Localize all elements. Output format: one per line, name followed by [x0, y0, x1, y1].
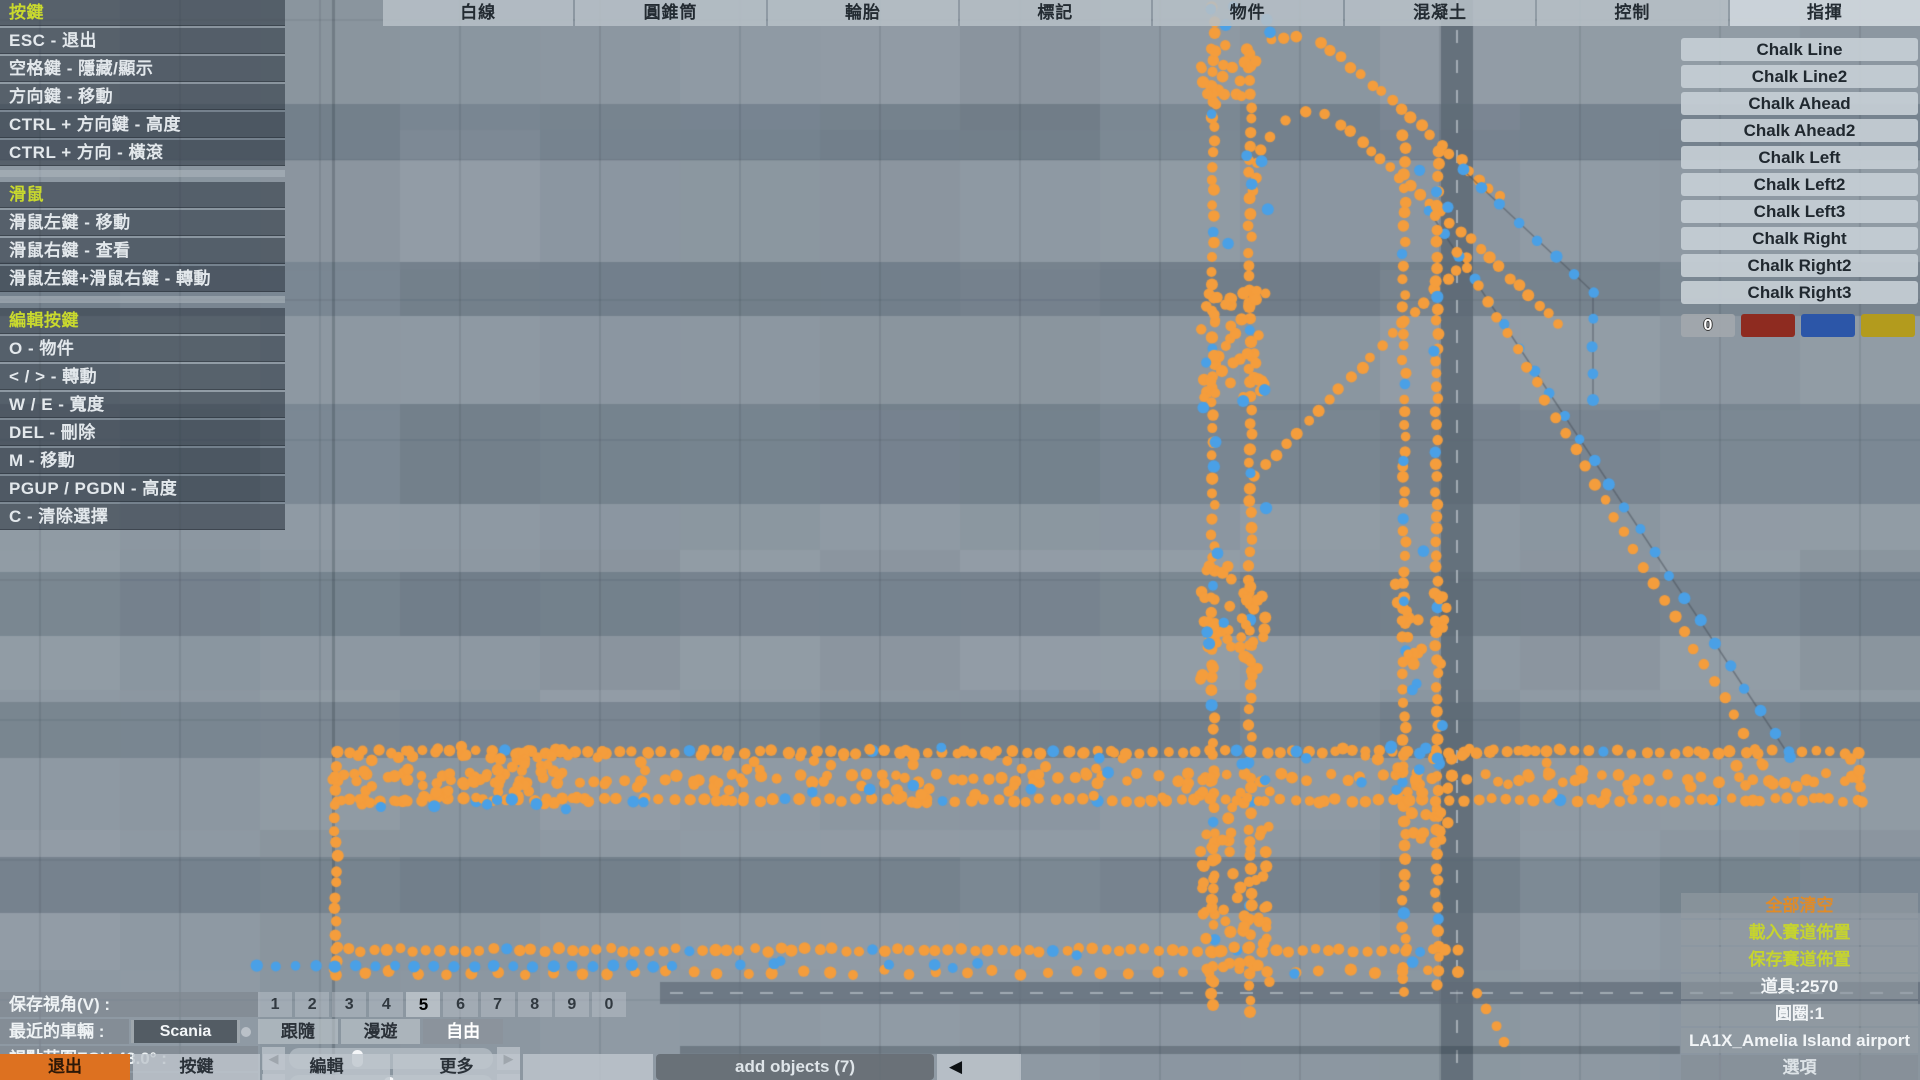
help-row: 滑鼠左鍵+滑鼠右鍵 - 轉動: [0, 266, 285, 292]
bottom-bar-spacer: [523, 1054, 653, 1080]
camera-mode-button[interactable]: 自由: [423, 1019, 503, 1044]
camera-mode-button[interactable]: 跟隨: [258, 1019, 338, 1044]
tab-圓錐筒[interactable]: 圓錐筒: [575, 0, 765, 26]
vehicle-dropdown[interactable]: Scania: [131, 1020, 240, 1043]
help-row: 滑鼠左鍵 - 移動: [0, 210, 285, 236]
tab-物件[interactable]: 物件: [1153, 0, 1343, 26]
tab-標記[interactable]: 標記: [960, 0, 1150, 26]
view-slot-button[interactable]: 1: [258, 992, 292, 1017]
map-name: LA1X_Amelia Island airport: [1681, 1028, 1918, 1053]
view-slot-button[interactable]: 2: [295, 992, 329, 1017]
help-section-title: 按鍵: [0, 0, 285, 26]
clear-all-button[interactable]: 全部清空: [1681, 893, 1918, 918]
more-button[interactable]: 更多: [393, 1054, 520, 1080]
tab-白線[interactable]: 白線: [383, 0, 573, 26]
chalk-item-button[interactable]: Chalk Line: [1681, 38, 1918, 61]
help-row: CTRL + 方向鍵 - 高度: [0, 112, 285, 138]
chalk-item-panel: Chalk LineChalk Line2Chalk AheadChalk Ah…: [1681, 38, 1918, 337]
camera-mode-row: 跟隨漫遊自由: [258, 1019, 503, 1044]
circles-count: 圓圈:1: [1681, 1001, 1918, 1026]
recent-vehicle-label: 最近的車輛 :: [0, 1019, 129, 1044]
camera-mode-button[interactable]: 漫遊: [341, 1019, 421, 1044]
tab-指揮[interactable]: 指揮: [1730, 0, 1920, 26]
map-canvas[interactable]: [0, 0, 1920, 1080]
chalk-item-button[interactable]: Chalk Right: [1681, 227, 1918, 250]
view-slot-button[interactable]: 5: [406, 992, 440, 1017]
object-category-tabs: 白線圓錐筒輪胎標記物件混凝土控制指揮: [383, 0, 1920, 26]
tab-控制[interactable]: 控制: [1537, 0, 1727, 26]
chalk-count-button[interactable]: 0: [1681, 314, 1735, 337]
help-row: W / E - 寬度: [0, 392, 285, 418]
session-panel: 全部清空 載入賽道佈置 保存賽道佈置 道具:2570 圓圈:1 LA1X_Ame…: [1681, 891, 1918, 1080]
bottom-bar: 退出 按鍵 編輯 更多 add objects (7) ◀: [0, 1054, 1920, 1080]
help-row: CTRL + 方向 - 橫滾: [0, 140, 285, 166]
keys-button[interactable]: 按鍵: [133, 1054, 260, 1080]
chalk-item-button[interactable]: Chalk Left3: [1681, 200, 1918, 223]
color-swatch-red[interactable]: [1741, 314, 1795, 337]
view-slot-row: 1234567890: [258, 992, 626, 1017]
chalk-color-row: 0: [1681, 314, 1918, 337]
help-row: 方向鍵 - 移動: [0, 84, 285, 110]
help-section-title: 編輯按鍵: [0, 308, 285, 334]
chalk-item-button[interactable]: Chalk Right2: [1681, 254, 1918, 277]
add-objects-button[interactable]: add objects (7): [656, 1054, 934, 1080]
save-view-row: 保存視角(V) : 1234567890: [0, 992, 1100, 1017]
view-slot-button[interactable]: 0: [592, 992, 626, 1017]
help-section-title: 滑鼠: [0, 182, 285, 208]
color-swatch-blue[interactable]: [1801, 314, 1855, 337]
help-panel: 按鍵ESC - 退出空格鍵 - 隱藏/顯示方向鍵 - 移動CTRL + 方向鍵 …: [0, 0, 285, 532]
chalk-item-button[interactable]: Chalk Line2: [1681, 65, 1918, 88]
view-slot-button[interactable]: 6: [443, 992, 477, 1017]
tab-混凝土[interactable]: 混凝土: [1345, 0, 1535, 26]
save-track-button[interactable]: 保存賽道佈置: [1681, 947, 1918, 972]
help-row: < / > - 轉動: [0, 364, 285, 390]
vehicle-dropdown-knob[interactable]: [241, 1027, 251, 1037]
view-slot-button[interactable]: 7: [481, 992, 515, 1017]
view-slot-button[interactable]: 4: [369, 992, 403, 1017]
collapse-arrow-icon[interactable]: ◀: [937, 1054, 1021, 1080]
help-row: ESC - 退出: [0, 28, 285, 54]
save-view-label: 保存視角(V) :: [0, 992, 258, 1017]
help-section-divider: [0, 170, 285, 177]
chalk-item-button[interactable]: Chalk Ahead2: [1681, 119, 1918, 142]
help-row: O - 物件: [0, 336, 285, 362]
view-slot-button[interactable]: 3: [332, 992, 366, 1017]
help-row: C - 清除選擇: [0, 504, 285, 530]
chalk-item-list: Chalk LineChalk Line2Chalk AheadChalk Ah…: [1681, 38, 1918, 304]
view-slot-button[interactable]: 8: [518, 992, 552, 1017]
help-section-divider: [0, 296, 285, 303]
editor-viewport: 按鍵ESC - 退出空格鍵 - 隱藏/顯示方向鍵 - 移動CTRL + 方向鍵 …: [0, 0, 1920, 1080]
chalk-item-button[interactable]: Chalk Left2: [1681, 173, 1918, 196]
color-swatch-yellow[interactable]: [1861, 314, 1915, 337]
chalk-item-button[interactable]: Chalk Right3: [1681, 281, 1918, 304]
help-row: DEL - 刪除: [0, 420, 285, 446]
help-row: 滑鼠右鍵 - 查看: [0, 238, 285, 264]
chalk-item-button[interactable]: Chalk Ahead: [1681, 92, 1918, 115]
edit-button[interactable]: 編輯: [263, 1054, 390, 1080]
props-count: 道具:2570: [1681, 974, 1918, 999]
help-row: PGUP / PGDN - 高度: [0, 476, 285, 502]
tab-輪胎[interactable]: 輪胎: [768, 0, 958, 26]
load-track-button[interactable]: 載入賽道佈置: [1681, 920, 1918, 945]
recent-vehicle-row: 最近的車輛 : Scania 跟隨漫遊自由: [0, 1019, 1100, 1044]
chalk-item-button[interactable]: Chalk Left: [1681, 146, 1918, 169]
exit-button[interactable]: 退出: [0, 1054, 130, 1080]
help-row: M - 移動: [0, 448, 285, 474]
help-row: 空格鍵 - 隱藏/顯示: [0, 56, 285, 82]
view-slot-button[interactable]: 9: [555, 992, 589, 1017]
